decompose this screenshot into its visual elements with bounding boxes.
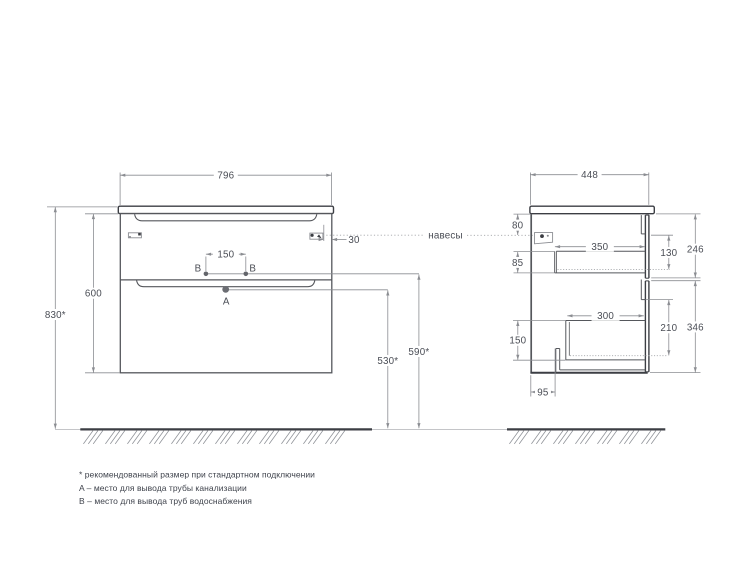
svg-text:796: 796 [217, 171, 234, 182]
svg-text:150: 150 [509, 336, 526, 347]
svg-text:300: 300 [597, 311, 614, 322]
svg-text:A – место для вывода трубы кан: A – место для вывода трубы канализации [79, 483, 247, 493]
svg-text:530*: 530* [377, 356, 398, 367]
svg-text:448: 448 [581, 170, 598, 181]
svg-text:130: 130 [660, 248, 677, 259]
svg-text:30: 30 [348, 235, 360, 246]
svg-text:246: 246 [687, 245, 704, 256]
svg-text:B – место для вывода труб водо: B – место для вывода труб водоснабжения [79, 496, 252, 506]
svg-text:A: A [223, 296, 230, 307]
svg-text:600: 600 [85, 289, 102, 300]
svg-text:95: 95 [537, 387, 549, 398]
svg-text:85: 85 [512, 258, 524, 269]
svg-text:навесы: навесы [428, 231, 463, 242]
svg-text:590*: 590* [408, 347, 429, 358]
svg-text:* рекомендованный размер при с: * рекомендованный размер при стандартном… [79, 470, 315, 480]
svg-text:B: B [195, 263, 202, 274]
svg-text:80: 80 [512, 221, 524, 232]
svg-text:830*: 830* [45, 310, 66, 321]
svg-text:346: 346 [687, 322, 704, 333]
svg-text:210: 210 [660, 323, 677, 334]
svg-text:B: B [249, 263, 256, 274]
svg-text:150: 150 [217, 250, 234, 261]
svg-text:350: 350 [591, 242, 608, 253]
